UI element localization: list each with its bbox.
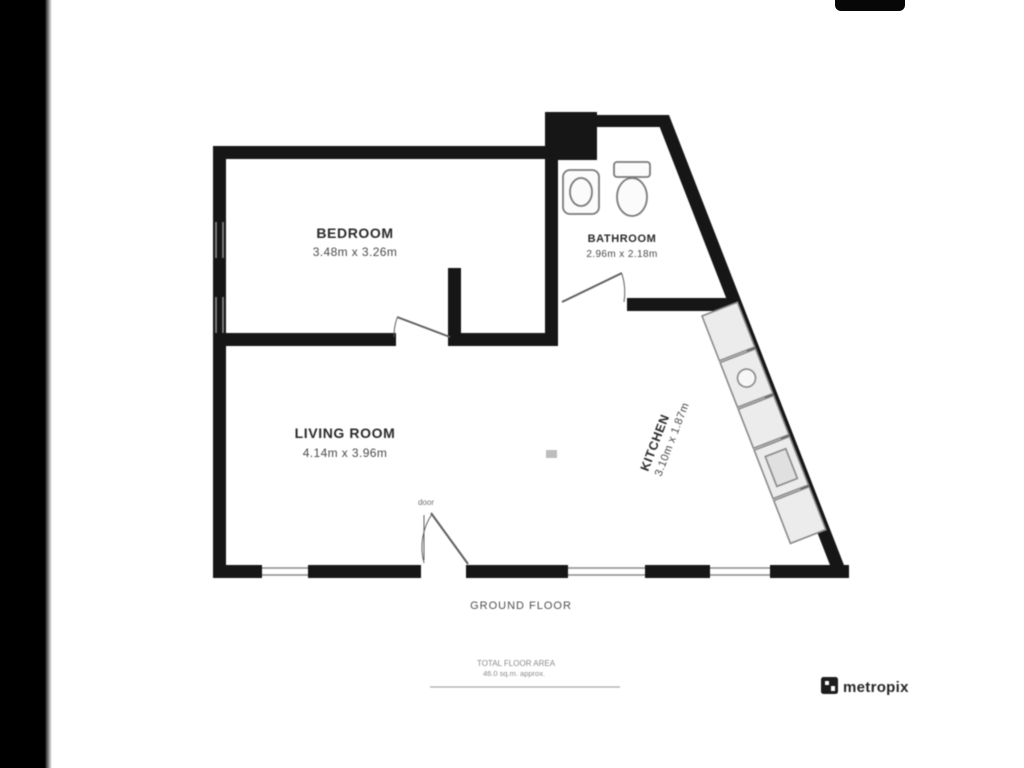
windows xyxy=(216,222,770,575)
brand-logo-icon-detail xyxy=(831,686,835,691)
floorplan-screenshot: BEDROOM 3.48m x 3.26m BATHROOM 2.96m x 2… xyxy=(0,0,1024,768)
wall-interior-horizontal-left xyxy=(226,333,396,346)
wall-bottom-seg2 xyxy=(308,565,421,578)
bathroom-door-arc xyxy=(622,274,625,302)
brand-logo: metropix xyxy=(821,677,909,696)
sink-basin xyxy=(570,178,592,206)
bathroom-label: BATHROOM xyxy=(588,233,657,245)
brand-logo-icon xyxy=(821,677,838,694)
area-note: TOTAL FLOOR AREA 46.0 sq.m. approx. xyxy=(430,659,620,687)
floorplan-drawing: BEDROOM 3.48m x 3.26m BATHROOM 2.96m x 2… xyxy=(0,0,1024,768)
wall-bottom-seg3 xyxy=(466,565,568,578)
terrace-door-leaf xyxy=(431,513,468,564)
wall-interior-stub xyxy=(448,268,461,346)
bedroom-door-leaf xyxy=(397,317,450,337)
wall-bedroom-bathroom-divider xyxy=(545,160,558,346)
room-labels: BEDROOM 3.48m x 3.26m BATHROOM 2.96m x 2… xyxy=(295,225,692,507)
door-label: door xyxy=(418,498,434,507)
doors xyxy=(394,273,625,564)
bathroom-fixtures xyxy=(563,162,650,216)
area-note-line1: TOTAL FLOOR AREA xyxy=(477,659,556,668)
brand-logo-icon-detail xyxy=(825,681,829,685)
toilet-cistern xyxy=(614,162,650,177)
kitchen-label-group: KITCHEN 3.10m x 1.87m xyxy=(638,395,692,478)
wall-bottom-seg1 xyxy=(213,565,262,578)
bedroom-label: BEDROOM xyxy=(316,225,393,241)
living-room-dimensions: 4.14m x 3.96m xyxy=(303,446,388,460)
living-room-label: LIVING ROOM xyxy=(295,425,396,441)
wall-interior-horizontal-right xyxy=(448,333,557,346)
bathroom-dimensions: 2.96m x 2.18m xyxy=(586,249,657,260)
wall-left xyxy=(213,146,226,578)
floor-label: GROUND FLOOR xyxy=(470,600,572,612)
radiator-mark xyxy=(546,450,557,458)
terrace-door-arc xyxy=(422,514,432,563)
solid-duct-block xyxy=(545,112,597,160)
bathroom-door-leaf xyxy=(562,273,622,302)
area-note-line2: 46.0 sq.m. approx. xyxy=(483,669,545,678)
brand-logo-text: metropix xyxy=(843,679,909,696)
wall-bottom-seg5 xyxy=(770,565,849,578)
wall-bathroom-bottom-stub xyxy=(627,298,730,311)
wall-bottom-seg4 xyxy=(645,565,710,578)
kitchen-counter-run xyxy=(702,302,826,543)
wall-top xyxy=(213,146,566,159)
toilet-bowl xyxy=(617,178,647,216)
bedroom-dimensions: 3.48m x 3.26m xyxy=(313,245,398,259)
